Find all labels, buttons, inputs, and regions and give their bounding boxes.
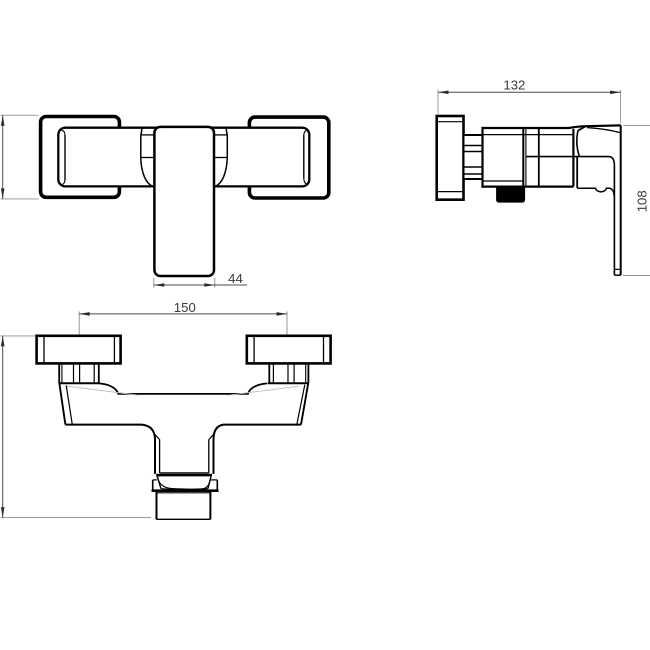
svg-text:44: 44 bbox=[228, 271, 243, 286]
svg-text:150: 150 bbox=[174, 300, 196, 315]
svg-text:108: 108 bbox=[635, 190, 650, 212]
svg-text:132: 132 bbox=[503, 77, 525, 92]
